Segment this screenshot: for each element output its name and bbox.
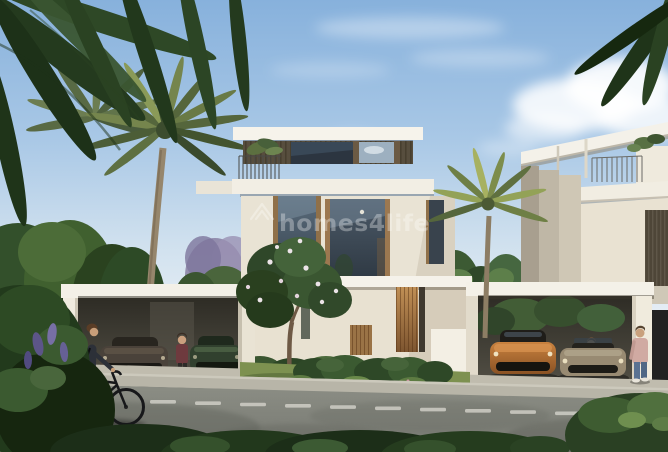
villa-street-photo: homes4life [0, 0, 668, 452]
render-scene: homes4life [0, 0, 668, 452]
timber-gate [350, 325, 372, 355]
window-right-narrow [429, 200, 444, 264]
watermark-text: homes4life [279, 209, 430, 237]
carport-column-slim [466, 296, 478, 384]
entry-door [396, 287, 425, 352]
right-carport [466, 282, 654, 384]
right-villa [521, 122, 668, 307]
